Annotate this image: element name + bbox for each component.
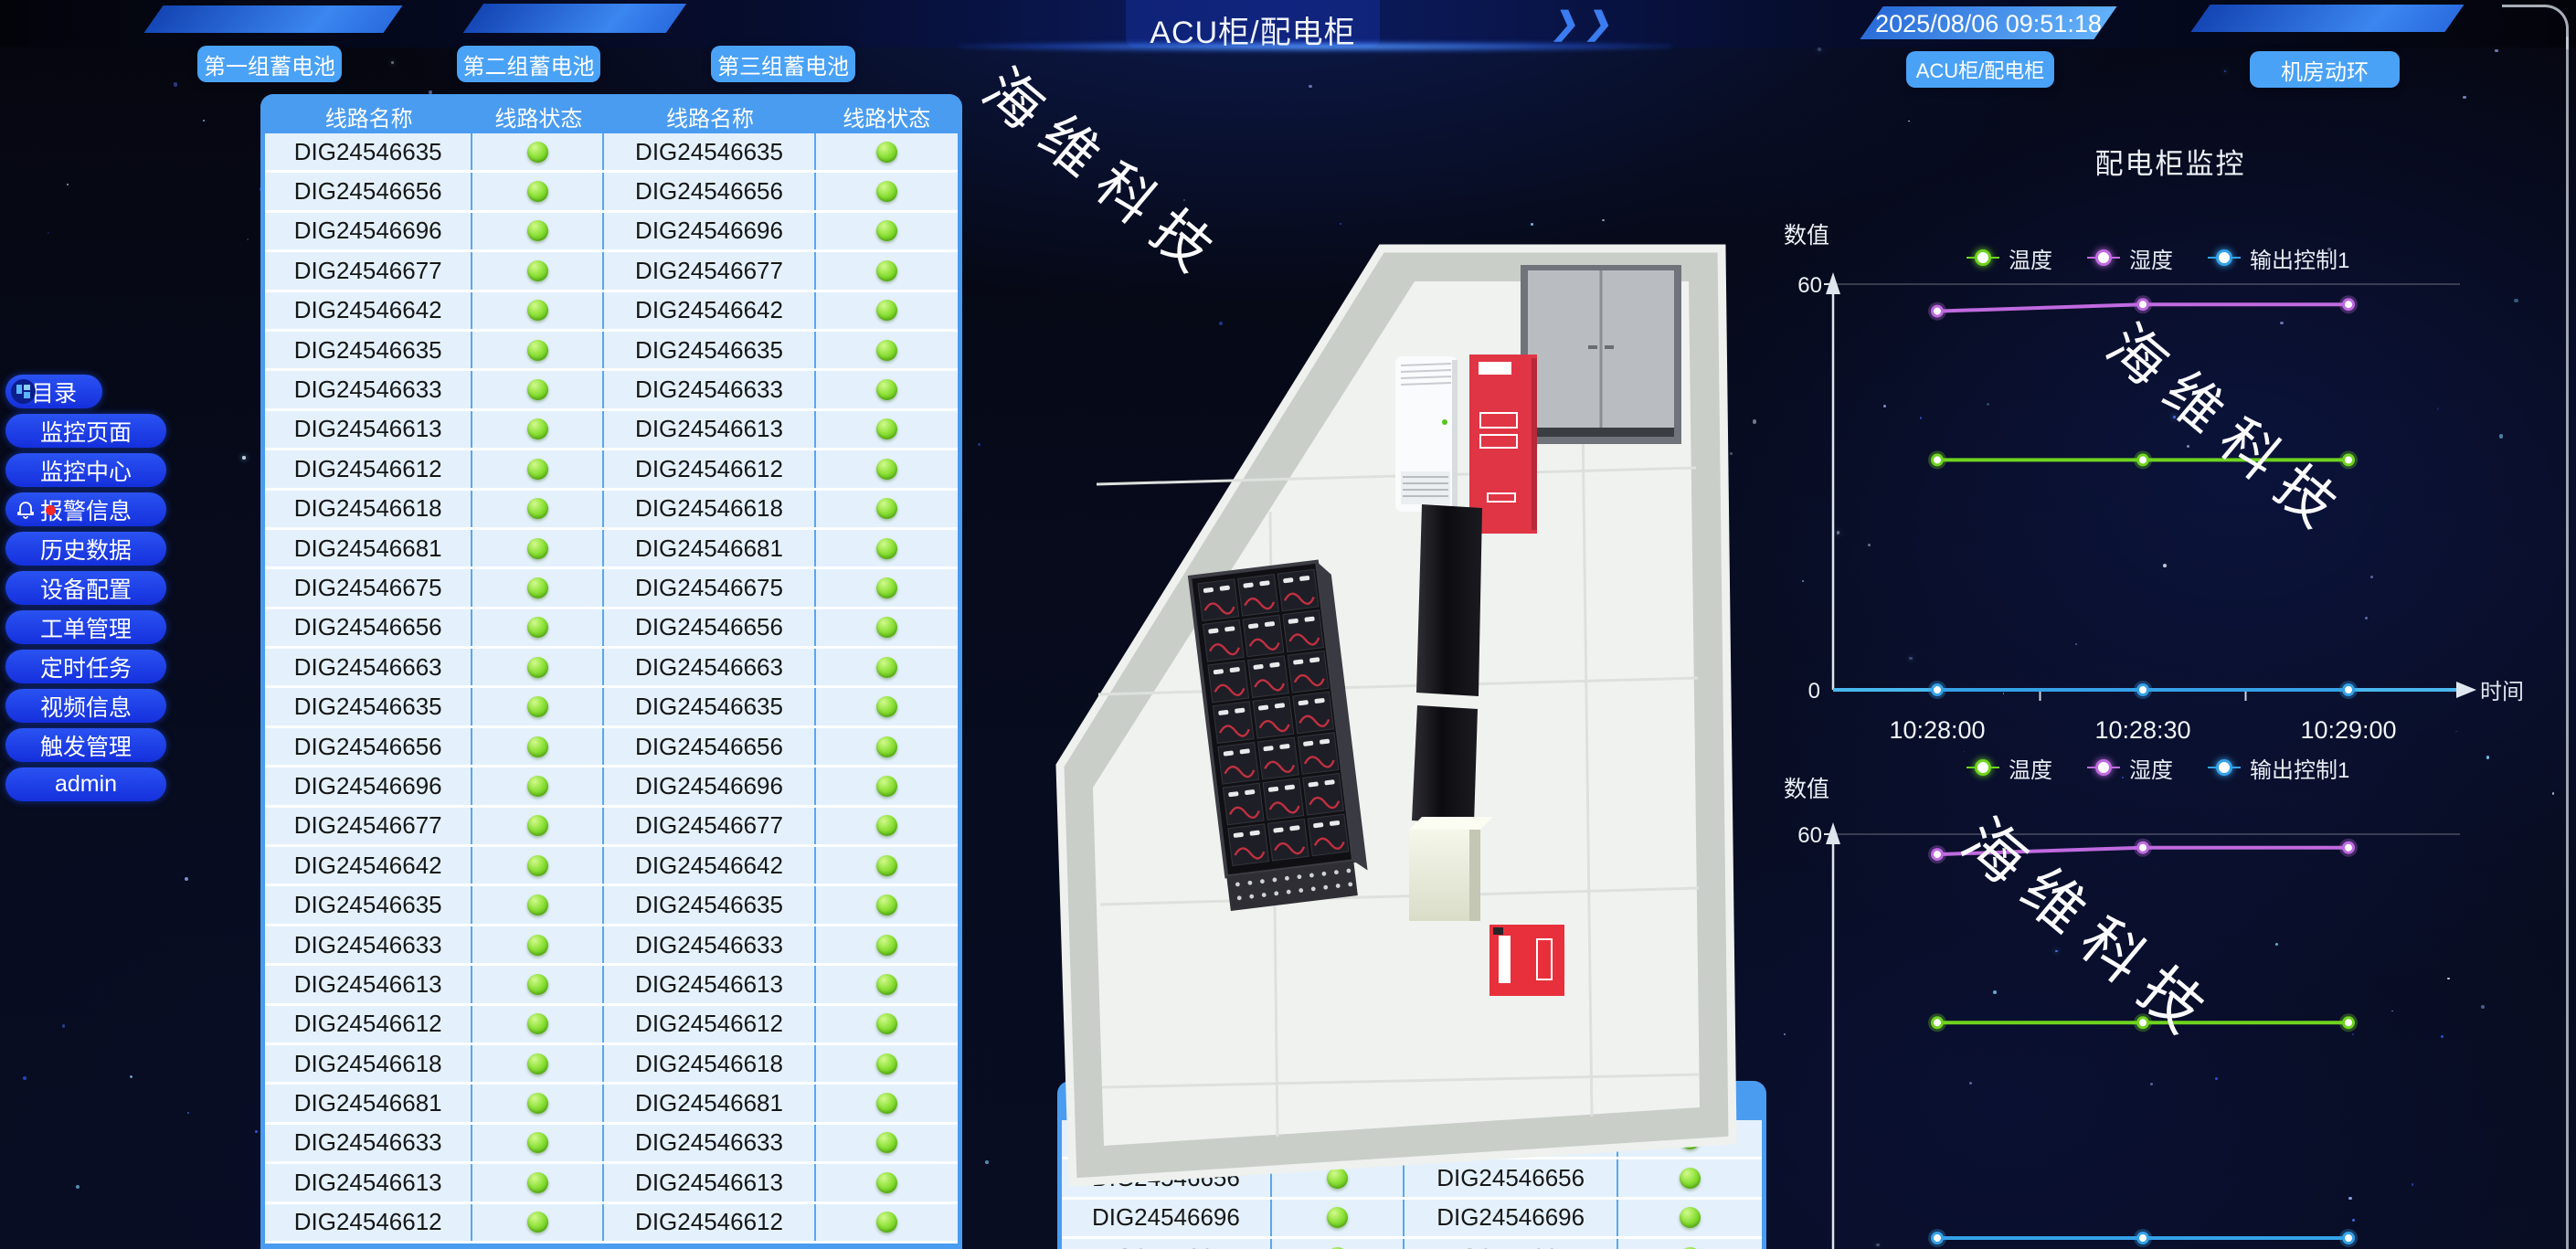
legend-item-湿度[interactable]: 湿度: [2087, 242, 2173, 274]
table-row: DIG24546642 DIG24546642: [265, 292, 958, 332]
status-dot-green: [527, 577, 548, 598]
circuit-status: [472, 213, 604, 249]
legend-marker-icon: [2087, 249, 2120, 266]
circuit-name: DIG24546635: [604, 332, 815, 368]
status-dot-green: [527, 379, 548, 400]
circuit-name: DIG24546675: [265, 569, 472, 606]
circuit-status: [816, 767, 958, 804]
data-point-温度: [1933, 1018, 1943, 1028]
sidebar-item-6[interactable]: 工单管理: [5, 610, 166, 644]
table-row: DIG24546613 DIG24546613: [265, 966, 958, 1005]
status-dot-green: [527, 815, 548, 836]
y-axis-label: 数值: [1784, 223, 1829, 249]
legend-item-输出控制1[interactable]: 输出控制1: [2208, 752, 2349, 784]
circuit-name: DIG24546613: [265, 411, 472, 448]
circuit-table-body: DIG24546635 DIG24546635 DIG24546656 DIG2…: [265, 133, 958, 1244]
star-dot: [76, 1185, 80, 1189]
table-row: DIG24546612 DIG24546612: [265, 1006, 958, 1045]
circuit-status-table: 线路名称 线路状态 线路名称 线路状态 DIG24546635 DIG24546…: [260, 94, 962, 1249]
sidebar-item-0[interactable]: 目录: [5, 375, 102, 408]
circuit-name: DIG24546635: [604, 133, 815, 170]
star-dot: [2463, 96, 2465, 99]
table-row: DIG24546663 DIG24546663: [265, 649, 958, 688]
status-dot-green: [876, 300, 897, 321]
legend-marker-icon: [1966, 759, 1999, 776]
circuit-status: [816, 966, 958, 1002]
circuit-status: [816, 530, 958, 566]
circuit-status: [472, 728, 604, 765]
circuit-status: [816, 926, 958, 963]
circuit-name: DIG24546681: [604, 1085, 815, 1121]
table-row: DIG24546677 DIG24546677: [265, 808, 958, 847]
circuit-name: DIG24546642: [265, 847, 472, 884]
circuit-name: DIG24546677: [604, 252, 815, 289]
status-dot-green: [527, 459, 548, 480]
battery-group-3-button[interactable]: 第三组蓄电池: [711, 46, 855, 82]
circuit-name: DIG24546656: [604, 173, 815, 209]
table-row: DIG24546656 DIG24546656: [265, 173, 958, 212]
circuit-name: DIG24546633: [604, 926, 815, 963]
star-dot: [985, 1160, 989, 1164]
battery-group-1-button[interactable]: 第一组蓄电池: [197, 46, 342, 82]
status-dot-green: [527, 696, 548, 717]
circuit-status: [816, 491, 958, 527]
acu-cabinet-button[interactable]: ACU柜/配电柜: [1906, 51, 2054, 88]
x-axis-label: 时间: [2480, 680, 2524, 704]
chevron-right-icon: ❯❯: [1550, 5, 1624, 42]
table-row: DIG24546635 DIG24546635: [265, 332, 958, 371]
status-dot-green: [876, 379, 897, 400]
status-dot-green: [876, 776, 897, 797]
status-dot-green: [527, 974, 548, 995]
star-dot: [247, 238, 249, 240]
table-row: DIG24546635 DIG24546635: [265, 133, 958, 173]
circuit-status: [472, 808, 604, 844]
status-dot-green: [876, 459, 897, 480]
bell-icon: [13, 497, 37, 522]
circuit-name: DIG24546612: [265, 450, 472, 487]
table-row: DIG24546677 DIG24546677: [265, 252, 958, 291]
legend-label: 温度: [2009, 242, 2052, 274]
circuit-name: DIG24546633: [265, 1125, 472, 1161]
star-dot: [185, 877, 188, 881]
table-row: DIG24546675 DIG24546675: [265, 569, 958, 609]
status-dot-green: [527, 1132, 548, 1153]
legend-label: 输出控制1: [2250, 242, 2349, 274]
star-dot: [2495, 49, 2497, 52]
table-row: DIG24546618 DIG24546618: [265, 1045, 958, 1085]
x-axis-arrow: [2456, 682, 2476, 698]
col-header: 线路状态: [472, 99, 604, 133]
status-dot-green: [527, 1053, 548, 1074]
sidebar-item-label: 监控页面: [40, 415, 132, 448]
status-dot-green: [876, 577, 897, 598]
circuit-status: [472, 252, 604, 289]
circuit-name: DIG24546635: [604, 688, 815, 725]
status-dot-green: [527, 617, 548, 638]
sidebar-item-8[interactable]: 视频信息: [5, 689, 166, 723]
circuit-name: DIG24546613: [604, 1164, 815, 1201]
sidebar-item-4[interactable]: 历史数据: [5, 532, 166, 566]
decor-parallelogram: [463, 4, 686, 33]
status-dot-green: [876, 1053, 897, 1074]
legend-label: 输出控制1: [2250, 752, 2349, 784]
dashboard-stage: ACU柜/配电柜 ❯❯ 2025/08/06 09:51:18 第一组蓄电池 第…: [0, 0, 2576, 1249]
status-dot-green: [527, 736, 548, 757]
circuit-name: DIG24546618: [604, 1045, 815, 1082]
table-row: DIG24546613 DIG24546613: [265, 1164, 958, 1203]
data-point-输出控制1: [1933, 685, 1943, 695]
status-dot-green: [527, 1212, 548, 1233]
table-row: DIG24546612 DIG24546612: [265, 450, 958, 490]
circuit-status: [816, 411, 958, 448]
legend-marker-icon: [1966, 249, 1999, 266]
status-dot-green: [876, 855, 897, 876]
legend-item-温度[interactable]: 温度: [1966, 752, 2052, 784]
data-point-输出控制1: [2138, 685, 2148, 695]
red-distribution-cabinet: [1469, 355, 1537, 534]
sidebar-item-label: admin: [55, 771, 117, 798]
battery-group-2-button[interactable]: 第二组蓄电池: [457, 46, 600, 82]
circuit-name: DIG24546613: [265, 1164, 472, 1201]
circuit-name: DIG24546635: [265, 688, 472, 725]
circuit-status: [472, 371, 604, 408]
circuit-name: DIG24546642: [265, 292, 472, 329]
circuit-status: [816, 688, 958, 725]
circuit-name: DIG24546633: [265, 926, 472, 963]
status-dot-green: [527, 340, 548, 361]
circuit-status: [472, 1006, 604, 1043]
table-row: DIG24546642 DIG24546642: [265, 847, 958, 886]
star-dot: [255, 1130, 258, 1133]
sidebar-item-label: 历史数据: [40, 533, 132, 566]
circuit-status: [816, 808, 958, 844]
sidebar-item-3[interactable]: 报警信息: [5, 492, 166, 526]
col-header: 线路名称: [265, 99, 472, 133]
circuit-name: DIG24546696: [265, 767, 472, 804]
circuit-name: DIG24546642: [604, 292, 815, 329]
circuit-name: DIG24546677: [604, 808, 815, 844]
sidebar-item-9[interactable]: 触发管理: [5, 728, 166, 762]
decor-parallelogram: [2190, 5, 2464, 32]
status-dot-green: [876, 696, 897, 717]
status-dot-green: [527, 935, 548, 956]
circuit-status: [816, 252, 958, 289]
circuit-status: [472, 688, 604, 725]
circuit-status: [472, 767, 604, 804]
circuit-name: DIG24546656: [604, 728, 815, 765]
star-dot: [978, 443, 981, 446]
page-title: ACU柜/配电柜: [1126, 7, 1380, 52]
circuit-status: [472, 926, 604, 963]
circuit-status: [472, 966, 604, 1002]
circuit-name: DIG24546613: [604, 411, 815, 448]
circuit-name: DIG24546612: [265, 1204, 472, 1241]
machine-room-3d-view: [1033, 228, 1773, 1249]
table-row: DIG24546613 DIG24546613: [265, 411, 958, 450]
status-dot-green: [527, 1093, 548, 1114]
circuit-status: [472, 1045, 604, 1082]
star-dot: [1602, 219, 1604, 221]
sidebar-item-label: 视频信息: [40, 690, 132, 723]
circuit-status: [816, 213, 958, 249]
y-tick-0: 0: [1808, 679, 1820, 704]
circuit-status: [472, 569, 604, 606]
air-conditioner-unit: [1395, 356, 1458, 512]
menu-grid-icon: [11, 379, 36, 404]
status-dot-green: [527, 776, 548, 797]
circuit-name: DIG24546635: [265, 133, 472, 170]
circuit-name: DIG24546642: [604, 847, 815, 884]
circuit-status: [816, 728, 958, 765]
circuit-name: DIG24546675: [604, 569, 815, 606]
circuit-name: DIG24546633: [265, 371, 472, 408]
circuit-name: DIG24546612: [604, 1006, 815, 1043]
circuit-status: [472, 1204, 604, 1241]
sidebar-item-label: 定时任务: [40, 651, 132, 683]
star-dot: [1309, 85, 1311, 88]
circuit-status: [816, 1204, 958, 1241]
circuit-status: [816, 450, 958, 487]
circuit-status: [816, 1006, 958, 1043]
status-dot-green: [527, 538, 548, 559]
chart-1-legend: 温度湿度输出控制1: [1966, 243, 2349, 272]
data-point-输出控制1: [2344, 685, 2354, 695]
star-dot: [203, 120, 205, 122]
data-point-温度: [2344, 1018, 2354, 1028]
circuit-status: [472, 332, 604, 368]
col-header: 线路名称: [604, 99, 815, 133]
status-dot-green: [527, 1013, 548, 1034]
data-point-输出控制1: [2138, 1233, 2148, 1244]
status-dot-green: [876, 935, 897, 956]
circuit-status: [472, 847, 604, 884]
star-dot: [130, 1075, 133, 1079]
circuit-name: DIG24546677: [265, 252, 472, 289]
table-row: DIG24546681 DIG24546681: [265, 530, 958, 569]
status-dot-green: [527, 181, 548, 202]
legend-item-温度[interactable]: 温度: [1966, 242, 2052, 274]
status-dot-green: [876, 1132, 897, 1153]
star-dot: [2224, 70, 2226, 72]
alarm-badge: [46, 505, 56, 515]
circuit-name: DIG24546656: [604, 609, 815, 646]
status-dot-green: [527, 1172, 548, 1193]
status-dot-green: [876, 657, 897, 678]
status-dot-green: [876, 617, 897, 638]
status-dot-green: [876, 142, 897, 163]
circuit-status: [816, 371, 958, 408]
legend-item-输出控制1[interactable]: 输出控制1: [2208, 242, 2349, 274]
circuit-name: DIG24546696: [604, 767, 815, 804]
star-dot: [1531, 223, 1533, 226]
status-dot-green: [876, 181, 897, 202]
sidebar-item-2[interactable]: 监控中心: [5, 453, 166, 487]
data-point-湿度: [2344, 300, 2354, 310]
legend-marker-icon: [2087, 759, 2120, 776]
decor-parallelogram: [143, 5, 402, 33]
status-dot-green: [876, 498, 897, 519]
circuit-name: DIG24546656: [265, 173, 472, 209]
red-cabinet-bottom: [1489, 925, 1564, 996]
circuit-name: DIG24546618: [265, 1045, 472, 1082]
circuit-name: DIG24546681: [265, 1085, 472, 1121]
status-dot-green: [527, 260, 548, 281]
status-dot-green: [876, 1013, 897, 1034]
table-row: DIG24546635 DIG24546635: [265, 886, 958, 926]
status-dot-green: [876, 974, 897, 995]
circuit-status: [472, 649, 604, 685]
table-row: DIG24546633 DIG24546633: [265, 371, 958, 410]
circuit-status: [816, 886, 958, 923]
circuit-name: DIG24546696: [604, 213, 815, 249]
circuit-name: DIG24546635: [265, 332, 472, 368]
circuit-status: [816, 1045, 958, 1082]
star-dot: [62, 1024, 65, 1027]
table-row: DIG24546656 DIG24546656: [265, 728, 958, 767]
circuit-name: DIG24546613: [604, 966, 815, 1002]
server-cabinet-black: [1416, 504, 1482, 696]
sidebar-item-5[interactable]: 设备配置: [5, 571, 166, 605]
sidebar-item-admin[interactable]: admin: [5, 767, 166, 801]
legend-marker-icon: [2208, 249, 2241, 266]
server-cabinet-black: [1412, 705, 1478, 824]
legend-marker-icon: [2208, 759, 2241, 776]
status-dot-green: [527, 498, 548, 519]
status-dot-green: [876, 1172, 897, 1193]
circuit-status: [816, 649, 958, 685]
machine-room-env-button[interactable]: 机房动环: [2250, 51, 2400, 88]
circuit-status: [472, 1085, 604, 1121]
sidebar-item-label: 设备配置: [40, 572, 132, 605]
circuit-status: [472, 450, 604, 487]
sidebar-item-label: 监控中心: [40, 454, 132, 487]
legend-label: 湿度: [2129, 242, 2173, 274]
table-row: DIG24546696 DIG24546696: [265, 213, 958, 252]
table-row: DIG24546681 DIG24546681: [265, 1085, 958, 1124]
data-point-输出控制1: [1933, 1233, 1943, 1244]
status-dot-green: [876, 340, 897, 361]
table-row: DIG24546633 DIG24546633: [265, 926, 958, 966]
table-row: DIG24546696 DIG24546696: [265, 767, 958, 807]
data-point-湿度: [2138, 842, 2148, 852]
y-tick-60: 60: [1797, 823, 1822, 848]
circuit-name: DIG24546618: [604, 491, 815, 527]
circuit-status: [816, 133, 958, 170]
circuit-status: [472, 530, 604, 566]
circuit-name: DIG24546681: [265, 530, 472, 566]
table-row: DIG24546656 DIG24546656: [265, 609, 958, 649]
chart-2-legend: 温度湿度输出控制1: [1966, 753, 2349, 782]
star-dot: [67, 184, 69, 185]
legend-label: 湿度: [2129, 752, 2173, 784]
col-header: 线路状态: [816, 99, 958, 133]
circuit-status: [816, 1125, 958, 1161]
status-dot-green: [527, 855, 548, 876]
status-dot-green: [876, 260, 897, 281]
status-dot-green: [876, 538, 897, 559]
star-dot: [1340, 223, 1341, 225]
table-row: DIG24546612 DIG24546612: [265, 1204, 958, 1244]
table-row: DIG24546635 DIG24546635: [265, 688, 958, 727]
status-dot-green: [876, 418, 897, 439]
circuit-status: [472, 491, 604, 527]
status-dot-green: [527, 220, 548, 241]
status-dot-green: [527, 300, 548, 321]
circuit-status: [816, 1085, 958, 1121]
y-axis-label: 数值: [1784, 777, 1829, 802]
circuit-name: DIG24546696: [265, 213, 472, 249]
sidebar-item-1[interactable]: 监控页面: [5, 414, 166, 448]
circuit-name: DIG24546612: [604, 1204, 815, 1241]
sidebar-item-7[interactable]: 定时任务: [5, 650, 166, 683]
data-point-湿度: [1933, 850, 1943, 860]
star-dot: [23, 1076, 27, 1080]
circuit-status: [816, 847, 958, 884]
status-dot-green: [876, 894, 897, 916]
data-point-温度: [2138, 455, 2148, 465]
circuit-name: DIG24546633: [604, 371, 815, 408]
data-point-湿度: [2344, 842, 2354, 852]
circuit-name: DIG24546656: [265, 609, 472, 646]
table-header: 线路名称 线路状态 线路名称 线路状态: [265, 99, 958, 133]
circuit-status: [472, 292, 604, 329]
circuit-status: [816, 173, 958, 209]
table-row: DIG24546633 DIG24546633: [265, 1125, 958, 1164]
timestamp: 2025/08/06 09:51:18: [1871, 10, 2105, 38]
status-dot-green: [876, 1212, 897, 1233]
circuit-name: DIG24546663: [604, 649, 815, 685]
circuit-name: DIG24546656: [265, 728, 472, 765]
legend-item-湿度[interactable]: 湿度: [2087, 752, 2173, 784]
circuit-status: [472, 133, 604, 170]
circuit-status: [816, 332, 958, 368]
status-dot-green: [876, 220, 897, 241]
circuit-status: [816, 1164, 958, 1201]
star-dot: [187, 1112, 189, 1114]
status-dot-green: [527, 657, 548, 678]
data-point-输出控制1: [2344, 1233, 2354, 1244]
circuit-status: [816, 609, 958, 646]
star-dot: [1908, 121, 1910, 122]
status-dot-green: [527, 418, 548, 439]
screen-frame-corner: [2502, 5, 2569, 49]
status-dot-green: [876, 815, 897, 836]
star-dot: [1818, 48, 1821, 51]
circuit-status: [472, 1164, 604, 1201]
circuit-name: DIG24546633: [604, 1125, 815, 1161]
room-door: [1521, 265, 1681, 444]
circuit-name: DIG24546618: [265, 491, 472, 527]
status-dot-green: [527, 894, 548, 916]
circuit-status: [472, 1125, 604, 1161]
circuit-status: [472, 411, 604, 448]
circuit-status: [472, 886, 604, 923]
y-tick-60: 60: [1797, 273, 1822, 298]
table-row: DIG24546618 DIG24546618: [265, 491, 958, 530]
circuit-name: DIG24546635: [265, 886, 472, 923]
circuit-status: [472, 609, 604, 646]
sidebar-item-label: 目录: [31, 376, 77, 408]
distribution-chart-1: 数值60010:28:0010:28:3010:29:00时间: [1782, 128, 2576, 749]
sidebar-item-label: 工单管理: [40, 611, 132, 644]
circuit-status: [472, 173, 604, 209]
circuit-name: DIG24546635: [604, 886, 815, 923]
status-dot-green: [527, 142, 548, 163]
circuit-name: DIG24546681: [604, 530, 815, 566]
data-point-温度: [1933, 455, 1943, 465]
circuit-name: DIG24546677: [265, 808, 472, 844]
